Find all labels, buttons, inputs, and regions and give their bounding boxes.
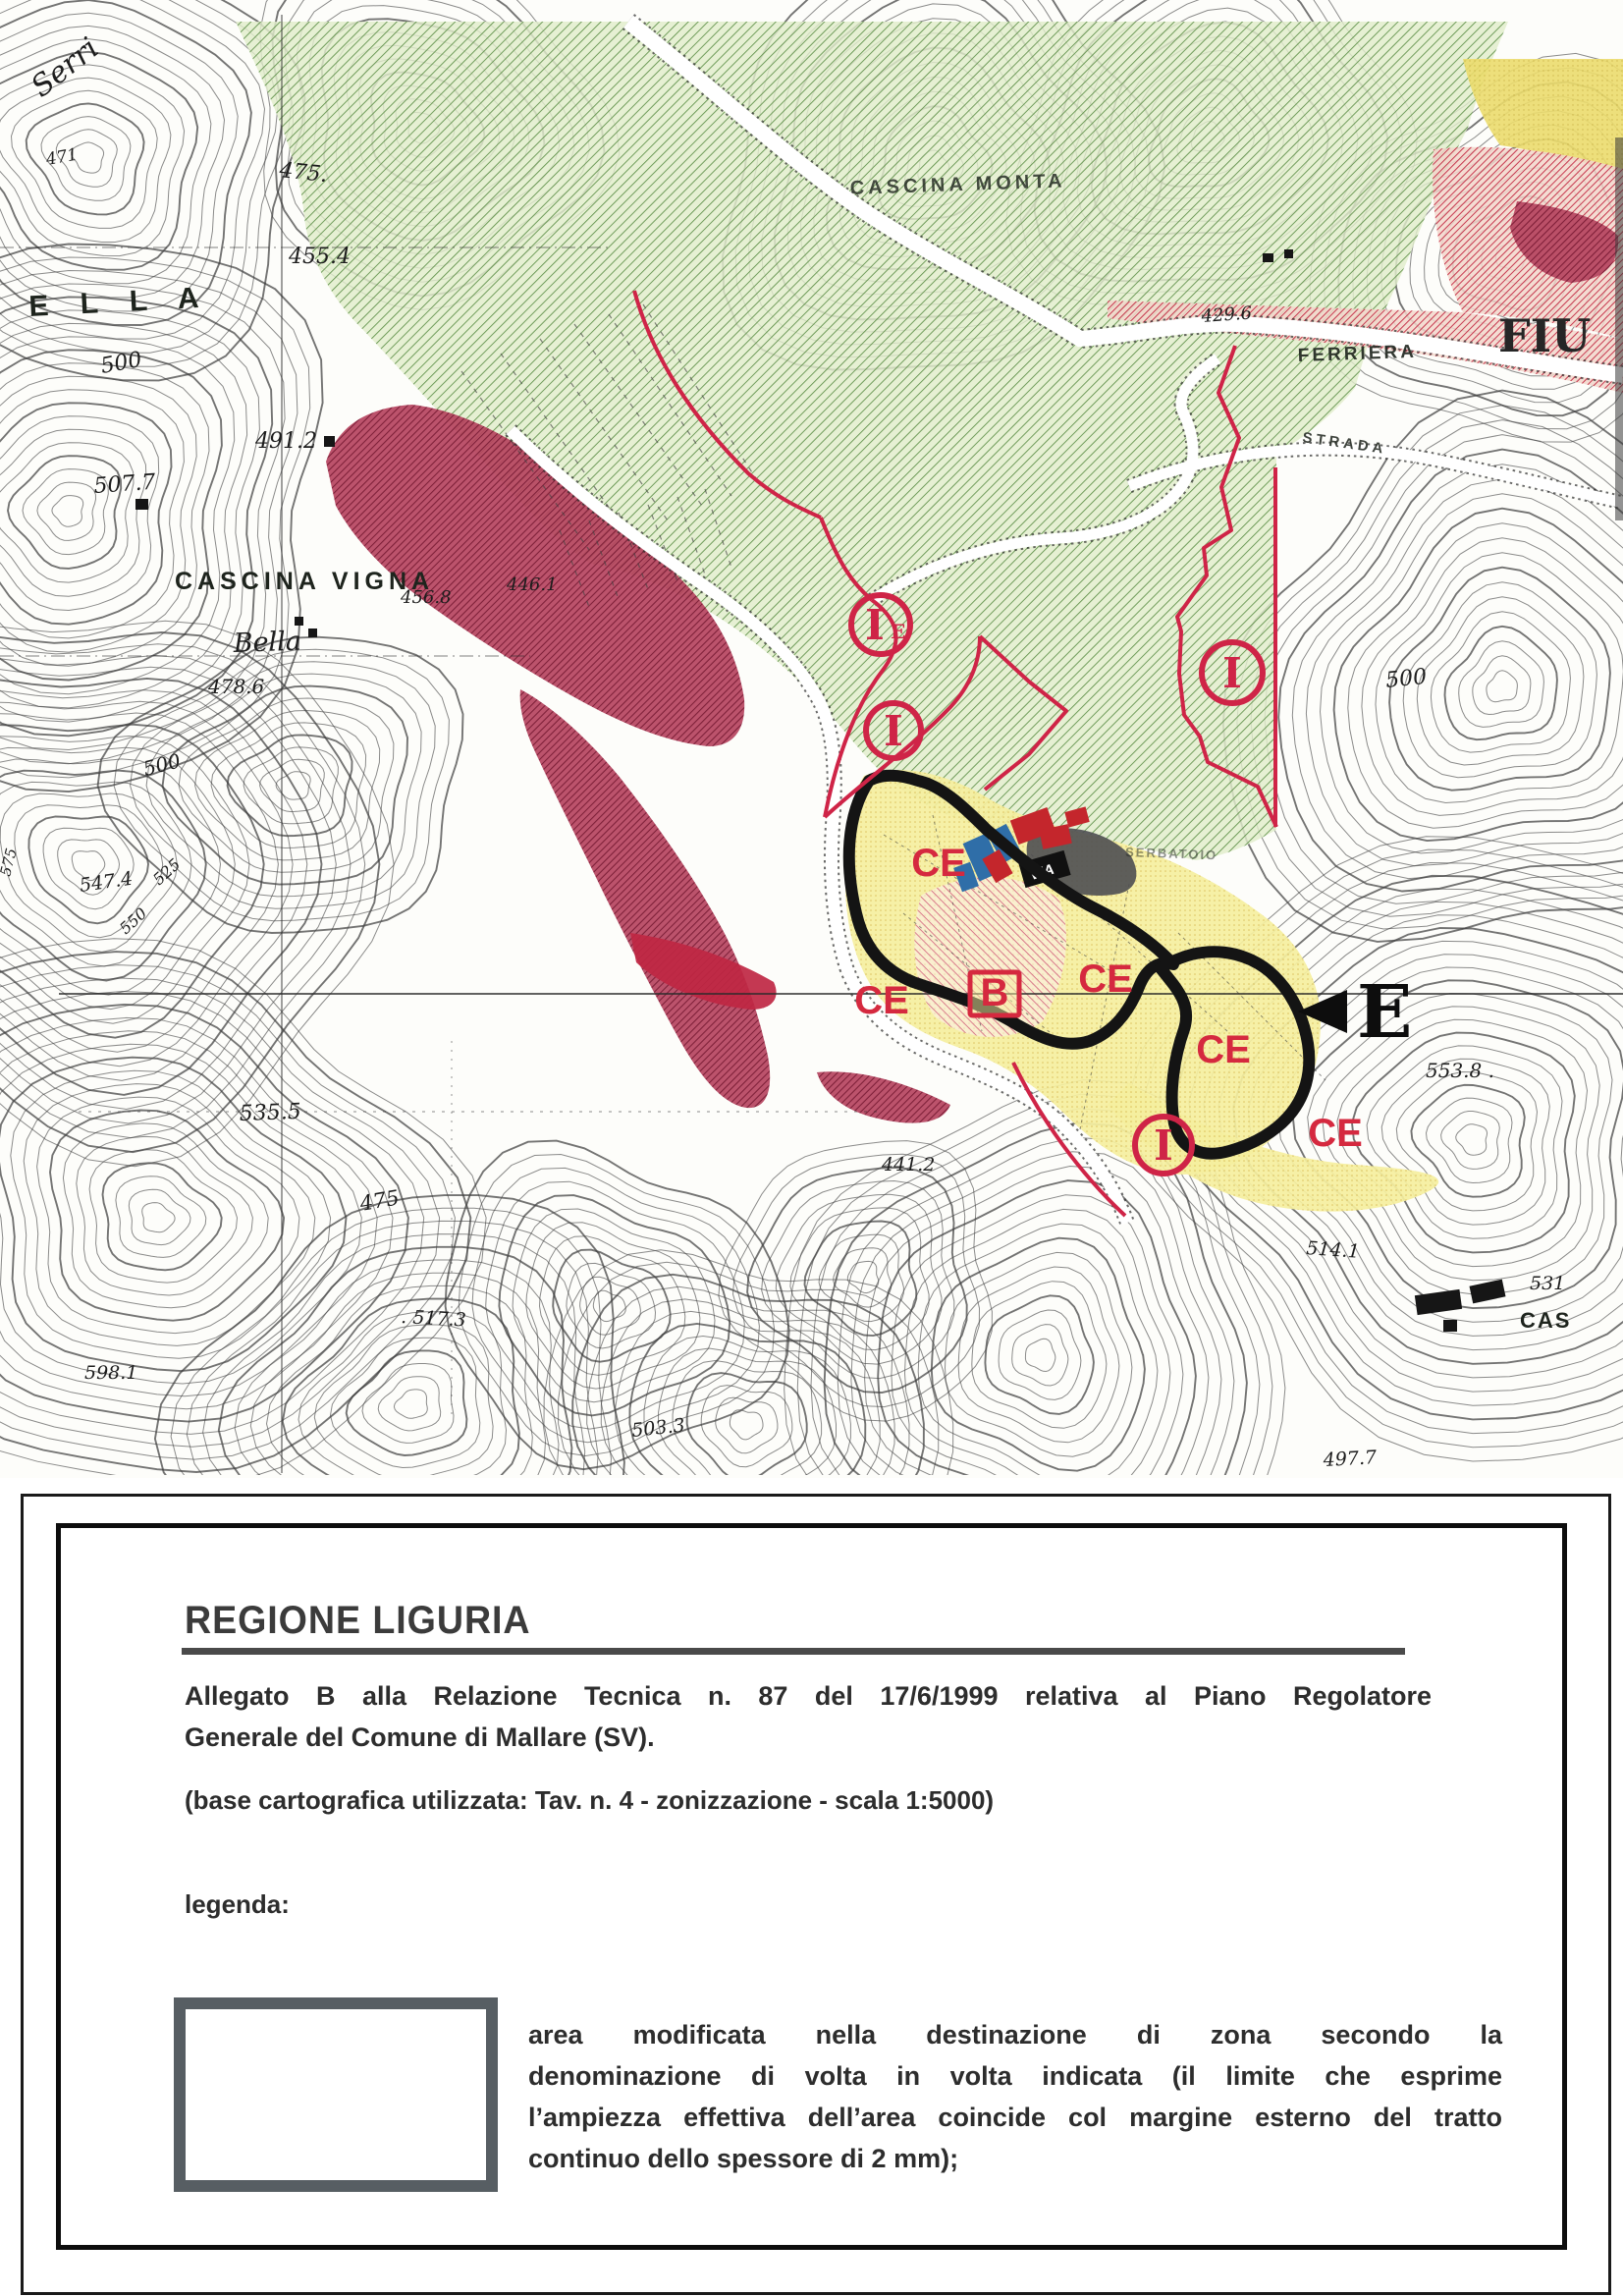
- base-cartography-note: (base cartografica utilizzata: Tav. n. 4…: [185, 1785, 994, 1816]
- map-label: FIU: [1498, 309, 1591, 362]
- map-label: 446.1: [506, 574, 558, 595]
- zone-circle-label: I: [865, 601, 885, 649]
- zone-circle-sublabel: E: [891, 620, 905, 643]
- map-canvas: VIA: [0, 0, 1623, 1478]
- map-label: 535.5: [239, 1100, 301, 1126]
- map-label: 500: [1384, 665, 1428, 693]
- legend-description: area modificata nella destinazione di zo…: [528, 2014, 1502, 2179]
- document-panel: REGIONE LIGURIA Allegato B alla Relazion…: [21, 1494, 1611, 2295]
- text-line: Allegato B alla Relazione Tecnica n. 87 …: [185, 1675, 1432, 1717]
- text-line: Generale del Comune di Mallare (SV).: [185, 1717, 1432, 1758]
- map-label: 598.1: [84, 1362, 137, 1384]
- b-zone-label: B: [981, 971, 1009, 1014]
- map-label: 491.2: [254, 429, 317, 454]
- map-label: . 517.3: [401, 1306, 467, 1331]
- e-marker-label: E: [1357, 970, 1412, 1055]
- text-line: denominazione di volta in volta indicata…: [528, 2055, 1502, 2097]
- ce-zone-label: CE: [1078, 957, 1133, 1001]
- ce-zone-label: CE: [1308, 1112, 1363, 1155]
- map-label: 507.7: [93, 470, 157, 499]
- allegato-paragraph: Allegato B alla Relazione Tecnica n. 87 …: [185, 1675, 1432, 1758]
- map-label: Bella: [232, 627, 301, 659]
- legend-swatch-box: [174, 1997, 498, 2192]
- map-label: 514.1: [1306, 1237, 1361, 1263]
- ce-zone-label: CE: [911, 842, 966, 885]
- text-line: area modificata nella destinazione di zo…: [528, 2014, 1502, 2055]
- map-label: 478.6: [207, 675, 265, 698]
- map-label: 553.8 .: [1426, 1059, 1494, 1082]
- ce-zone-label: CE: [854, 979, 909, 1022]
- ce-zone-label: CE: [1196, 1028, 1251, 1071]
- legend-heading: legenda:: [185, 1889, 290, 1920]
- map-label: 429.6: [1200, 302, 1253, 327]
- zone-circle-label: I: [1222, 649, 1242, 697]
- document-panel-inner-border: REGIONE LIGURIA Allegato B alla Relazion…: [56, 1523, 1567, 2250]
- zone-circle-label: I: [1154, 1121, 1173, 1170]
- map-label: FERRIERA: [1297, 342, 1417, 366]
- text-line: continuo dello spessore di 2 mm);: [528, 2138, 1502, 2179]
- map-label: CAS: [1520, 1308, 1571, 1333]
- map-label: 455.4: [288, 245, 351, 269]
- map-label: 456.8: [400, 587, 452, 608]
- page-title: REGIONE LIGURIA: [185, 1599, 531, 1643]
- map-label: 441.2: [881, 1154, 935, 1175]
- scan-edge-artifact: [1615, 137, 1623, 520]
- topographic-map: VIA: [0, 0, 1623, 1478]
- scanned-page: { "document": { "title": "REGIONE LIGURI…: [0, 0, 1623, 2296]
- map-label: 531: [1530, 1273, 1565, 1294]
- map-label: 497.7: [1322, 1447, 1378, 1471]
- zone-circle-label: I: [884, 707, 903, 755]
- map-label: 475.: [277, 158, 328, 188]
- map-label: CASCINA VIGNA: [175, 568, 434, 595]
- text-line: l’ampiezza effettiva dell’area coincide …: [528, 2097, 1502, 2138]
- b-zone-marker: B: [970, 971, 1019, 1015]
- title-underline: [182, 1648, 1405, 1655]
